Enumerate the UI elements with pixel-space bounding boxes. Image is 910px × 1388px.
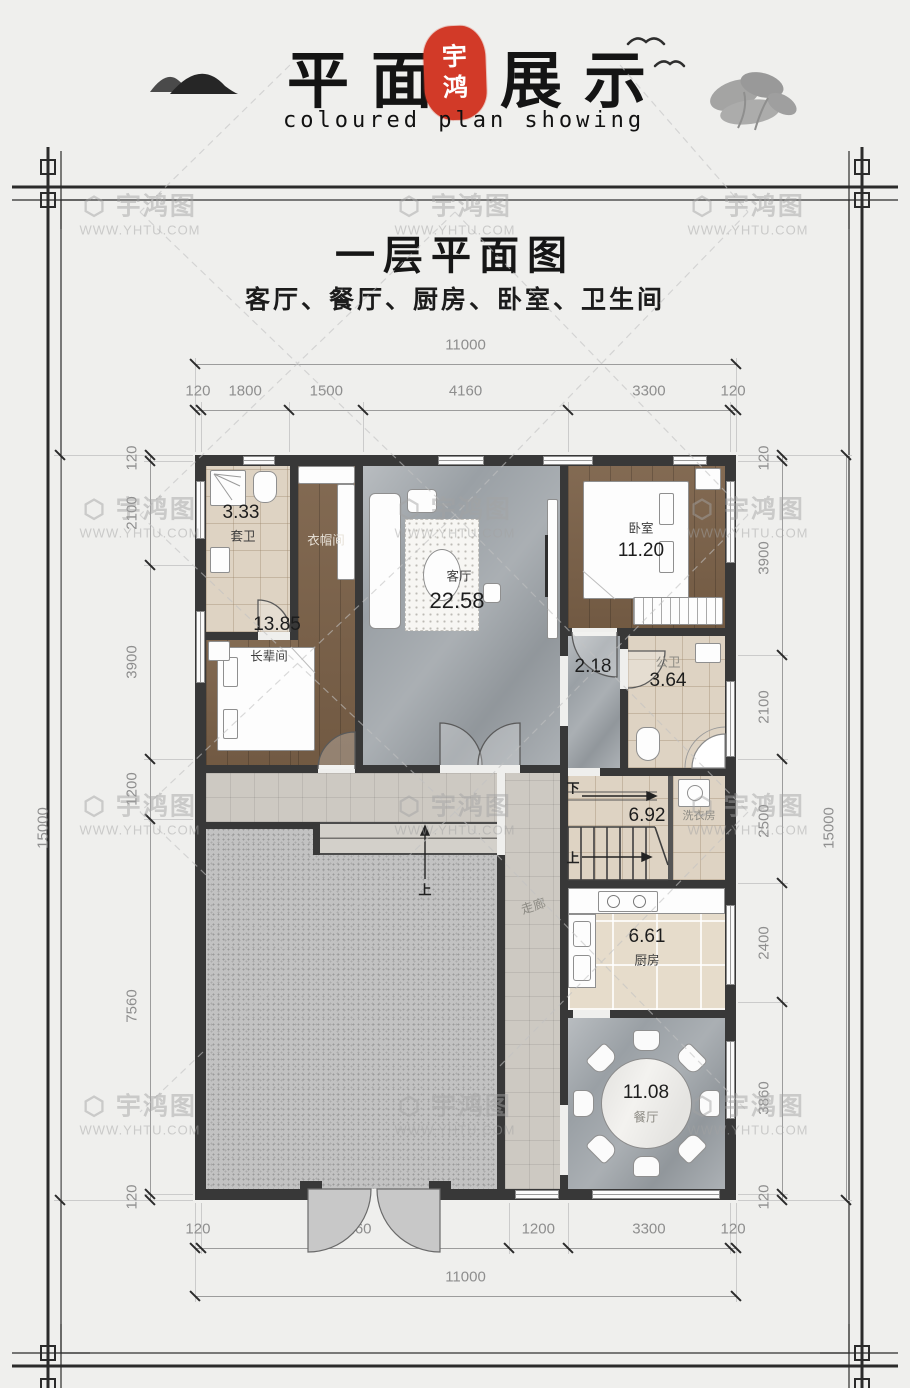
wall	[560, 773, 568, 1105]
header-subtitle-en: coloured plan showing	[283, 108, 645, 133]
page-subtitle: 客厅、餐厅、厨房、卧室、卫生间	[245, 280, 665, 316]
elder-name: 长辈间	[250, 646, 288, 665]
wall	[560, 726, 568, 773]
bath2-area: 3.64	[650, 670, 687, 692]
wall	[600, 768, 725, 776]
corridor-horizontal-floor	[206, 773, 497, 822]
header-title-cn-right: 展示	[500, 30, 668, 120]
window	[438, 456, 484, 465]
seal-char-2: 鸿	[442, 73, 468, 105]
wall	[568, 880, 725, 888]
wall	[617, 628, 725, 636]
window	[726, 1041, 735, 1119]
closet-name: 衣帽间	[307, 530, 345, 549]
kitchen-sink	[568, 914, 596, 988]
nightstand	[208, 641, 230, 661]
nightstand	[695, 468, 721, 490]
wall	[620, 689, 628, 768]
entry-pillar	[429, 1181, 451, 1200]
window	[515, 1190, 559, 1199]
entry-up-label: 上	[418, 880, 431, 899]
page-title: 一层平面图	[335, 223, 575, 281]
wall	[195, 1189, 308, 1200]
stove	[598, 891, 658, 912]
bedroom-area: 11.20	[618, 540, 664, 562]
wall	[206, 765, 318, 773]
pillow	[659, 493, 674, 525]
kitchen-area: 6.61	[629, 926, 666, 948]
stairs-up-label: 上	[566, 848, 579, 867]
shower-tray	[210, 470, 246, 506]
bedroom-name: 卧室	[628, 518, 653, 537]
floor-plan: 3.33 套卫 衣帽间 客厅 22.58 卧室 11.20 13.85 长辈间 …	[195, 455, 736, 1200]
bedroom-wardrobe	[633, 597, 723, 625]
corridor-vertical-floor	[505, 773, 560, 1189]
wall	[610, 1010, 725, 1018]
stairwell-floor	[568, 776, 668, 880]
living-name: 客厅	[446, 566, 471, 585]
plant-icon	[706, 68, 801, 130]
floor-plan-poster: 平面 宇 鸿 展示 coloured plan showing 一层平面图 客厅…	[0, 0, 910, 1388]
dining-chair	[633, 1030, 660, 1051]
entry-steps	[315, 822, 497, 855]
tv-console	[547, 499, 558, 639]
tv-icon	[545, 535, 548, 597]
wall	[355, 765, 440, 773]
kitchen-name: 厨房	[634, 950, 659, 969]
wall	[560, 1175, 568, 1189]
toilet-bath2	[636, 727, 660, 761]
stairs-down-label: 下	[566, 778, 579, 797]
wall	[206, 822, 315, 829]
bath1-area: 3.33	[223, 502, 260, 524]
window	[592, 1190, 720, 1199]
armchair	[407, 489, 437, 513]
elder-area: 13.85	[253, 614, 301, 636]
window	[726, 481, 735, 563]
terrace-floor	[206, 822, 497, 1189]
bath2-name: 公卫	[655, 652, 680, 671]
washing-machine	[678, 779, 710, 807]
wall	[560, 628, 572, 636]
stool	[483, 583, 501, 603]
window	[543, 456, 593, 465]
dining-chair	[573, 1090, 594, 1117]
window	[196, 611, 205, 683]
wall	[620, 636, 628, 649]
dining-chair	[633, 1156, 660, 1177]
window	[243, 456, 275, 465]
wall	[355, 466, 363, 773]
dining-chair	[699, 1090, 720, 1117]
entry-pillar	[300, 1181, 322, 1200]
window	[726, 681, 735, 757]
seal-char-1: 宇	[441, 41, 467, 73]
wall	[497, 855, 505, 1189]
brand-seal: 宇 鸿	[422, 25, 487, 121]
wardrobe-top	[298, 466, 355, 484]
sofa	[369, 493, 401, 629]
wall	[568, 1010, 573, 1018]
wall	[668, 776, 673, 880]
pillow	[223, 657, 238, 687]
dining-area: 11.08	[623, 1082, 669, 1104]
sink-bath2	[695, 643, 721, 663]
pillow	[223, 709, 238, 739]
stairwell-area: 6.92	[629, 805, 666, 827]
toilet-bath1	[253, 471, 277, 503]
mountains-icon	[150, 74, 238, 94]
window	[196, 481, 205, 539]
wall	[195, 455, 206, 1200]
wall	[313, 822, 320, 855]
hall-area: 2.18	[575, 656, 612, 678]
window	[726, 905, 735, 985]
laundry-name: 洗衣房	[683, 807, 716, 823]
bath1-name: 套卫	[230, 526, 255, 545]
dining-name: 餐厅	[633, 1107, 658, 1126]
sink-bath1	[210, 547, 230, 573]
window	[673, 456, 707, 465]
living-area: 22.58	[429, 588, 484, 614]
wall	[206, 632, 258, 640]
